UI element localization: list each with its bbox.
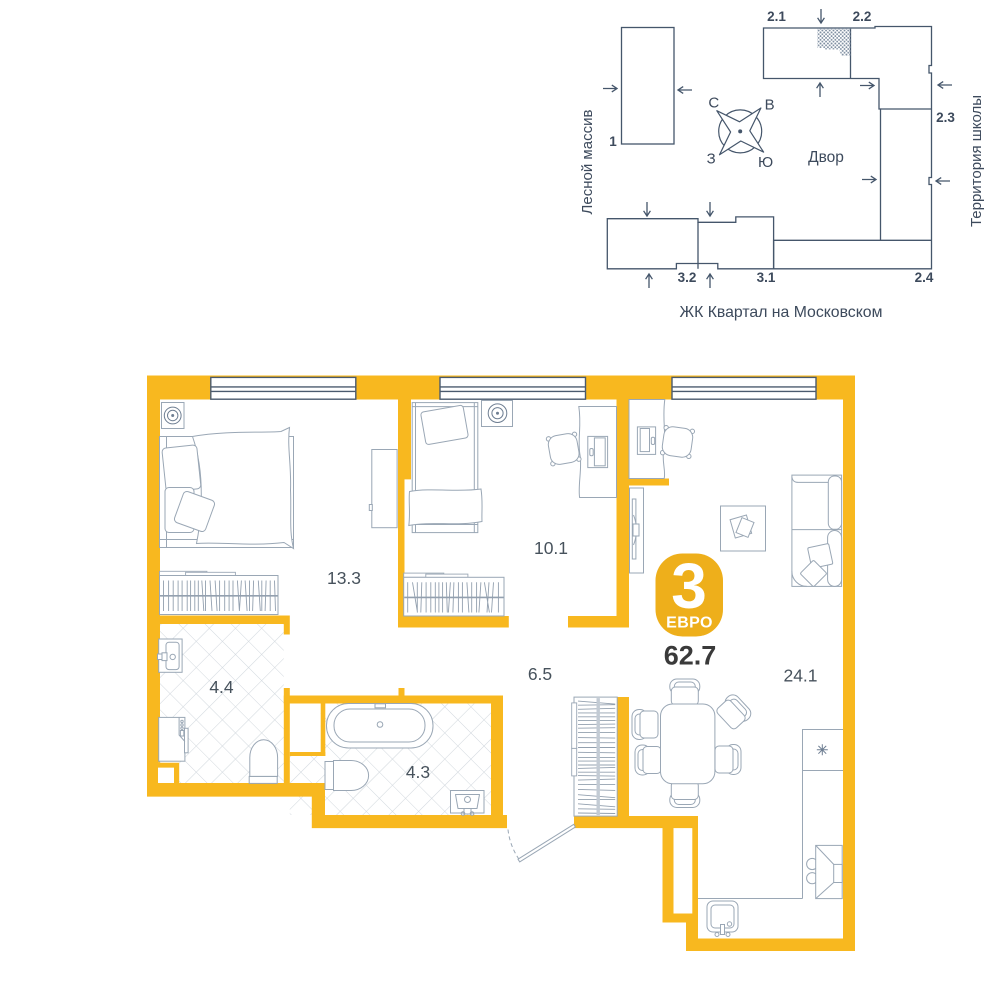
svg-text:13.3: 13.3	[327, 568, 361, 588]
svg-text:3: 3	[671, 550, 707, 622]
svg-text:1: 1	[609, 134, 617, 149]
svg-text:3.2: 3.2	[678, 270, 697, 285]
svg-text:Двор: Двор	[808, 149, 844, 166]
svg-text:ЖК Квартал на Московском: ЖК Квартал на Московском	[680, 304, 883, 321]
svg-text:6.5: 6.5	[528, 664, 552, 684]
svg-text:62.7: 62.7	[664, 641, 717, 671]
svg-text:Лесной массив: Лесной массив	[579, 110, 596, 215]
svg-text:3.1: 3.1	[757, 270, 776, 285]
svg-text:З: З	[707, 151, 716, 168]
svg-text:4.3: 4.3	[406, 762, 430, 782]
svg-text:В: В	[765, 97, 775, 114]
svg-text:2.4: 2.4	[915, 270, 934, 285]
svg-text:Ю: Ю	[758, 154, 773, 171]
svg-text:2.1: 2.1	[767, 9, 786, 24]
svg-text:С: С	[708, 95, 719, 112]
svg-text:ЕВРО: ЕВРО	[666, 615, 713, 632]
svg-text:10.1: 10.1	[534, 538, 568, 558]
svg-text:4.4: 4.4	[209, 677, 234, 697]
svg-text:2.2: 2.2	[853, 9, 872, 24]
svg-text:2.3: 2.3	[936, 110, 955, 125]
svg-text:24.1: 24.1	[783, 666, 817, 686]
svg-text:Территория школы: Территория школы	[968, 95, 985, 227]
